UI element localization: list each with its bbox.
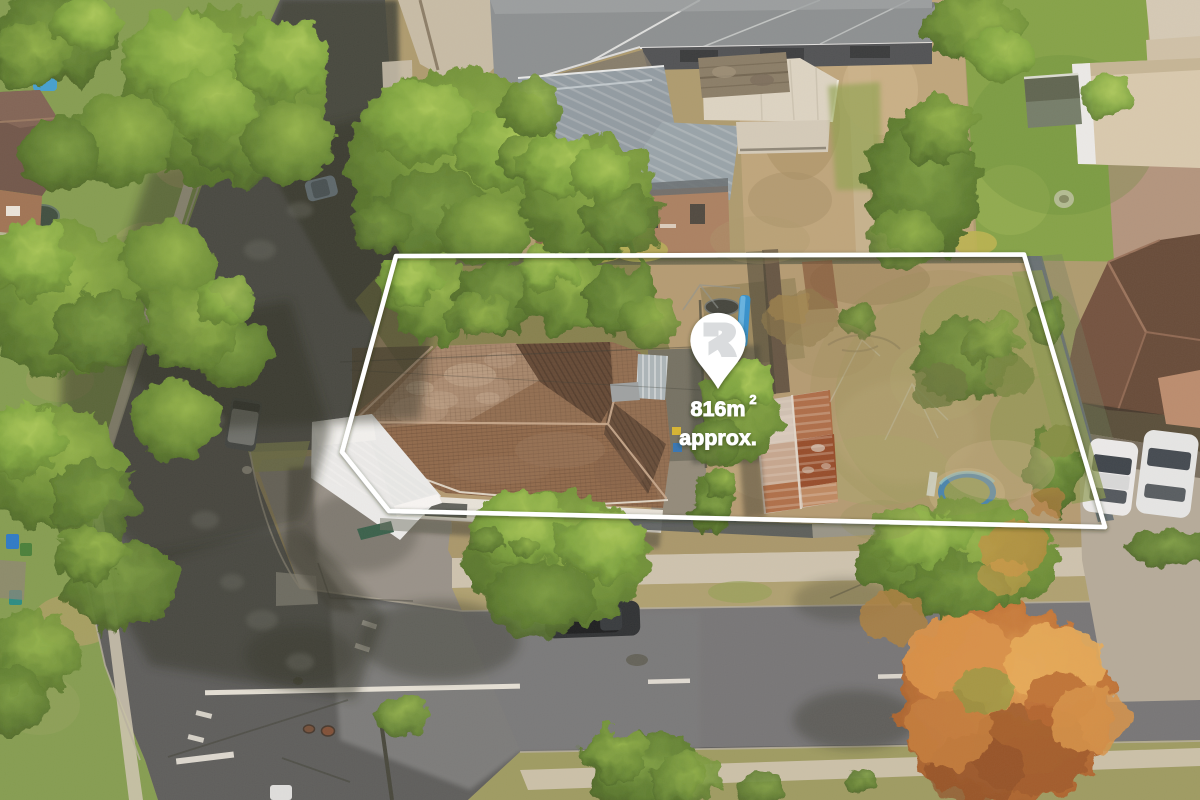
svg-text:2: 2 bbox=[749, 392, 756, 407]
svg-text:816m: 816m bbox=[691, 397, 746, 421]
svg-text:approx.: approx. bbox=[679, 426, 757, 450]
